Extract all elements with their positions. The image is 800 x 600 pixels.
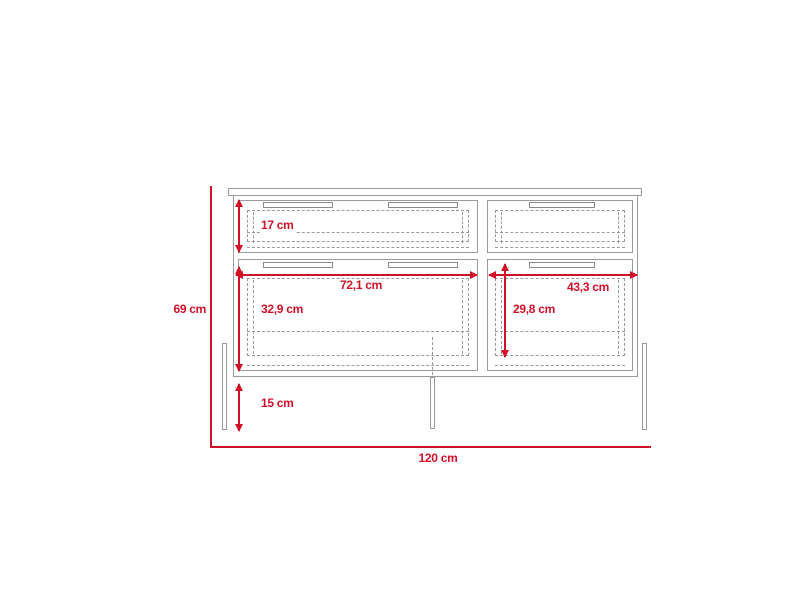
drawer-hidden-line xyxy=(495,247,625,248)
drawer-handle xyxy=(388,202,458,208)
drawer-hidden-line xyxy=(247,365,469,366)
bottom-right-drawer-height-arrow xyxy=(504,264,506,357)
leg-height-label: 15 cm xyxy=(260,397,295,411)
drawer-slide-hidden-line xyxy=(501,280,502,354)
drawer-handle xyxy=(529,262,595,268)
top-drawer-height-arrow xyxy=(238,200,240,252)
leg-left xyxy=(222,343,227,430)
left-drawer-width-arrow xyxy=(236,274,477,276)
overall-height-dimension-line xyxy=(210,186,212,447)
drawer-hidden-line xyxy=(247,331,469,332)
bottom-right-drawer-height-label: 29,8 cm xyxy=(512,303,556,317)
drawer-hidden-line xyxy=(495,331,625,332)
drawer-hidden-line xyxy=(495,232,625,233)
drawer-handle xyxy=(388,262,458,268)
overall-width-dimension-line xyxy=(210,446,651,448)
drawer-box-hidden-outline xyxy=(495,210,625,242)
leg-height-arrow xyxy=(238,384,240,431)
drawer-slide-hidden-line xyxy=(253,280,254,354)
bottom-left-drawer-height-label: 32,9 cm xyxy=(260,303,304,317)
left-drawer-width-label: 72,1 cm xyxy=(331,279,391,293)
drawer-handle xyxy=(263,202,333,208)
leg-middle-hidden-line xyxy=(432,337,433,375)
drawer-slide-hidden-line xyxy=(253,212,254,243)
drawer-hidden-line xyxy=(247,247,469,248)
overall-height-label: 69 cm xyxy=(158,303,207,317)
drawer-hidden-line xyxy=(495,365,625,366)
bottom-left-drawer-height-arrow xyxy=(238,267,240,371)
drawer-handle xyxy=(529,202,595,208)
leg-right xyxy=(642,343,647,430)
top-drawer-height-label: 17 cm xyxy=(260,219,295,233)
leg-middle xyxy=(430,377,435,429)
drawer-slide-hidden-line xyxy=(462,212,463,243)
drawer-slide-hidden-line xyxy=(618,212,619,243)
drawer-slide-hidden-line xyxy=(618,280,619,354)
right-drawer-width-arrow xyxy=(489,274,637,276)
overall-width-label: 120 cm xyxy=(407,452,469,466)
drawer-top-right xyxy=(487,200,633,253)
furniture-dimension-diagram: 17 cm 72,1 cm 43,3 cm 32,9 cm 29,8 cm 15… xyxy=(0,0,800,600)
drawer-handle xyxy=(263,262,333,268)
right-drawer-width-label: 43,3 cm xyxy=(558,281,618,295)
drawer-slide-hidden-line xyxy=(501,212,502,243)
drawer-slide-hidden-line xyxy=(462,280,463,354)
